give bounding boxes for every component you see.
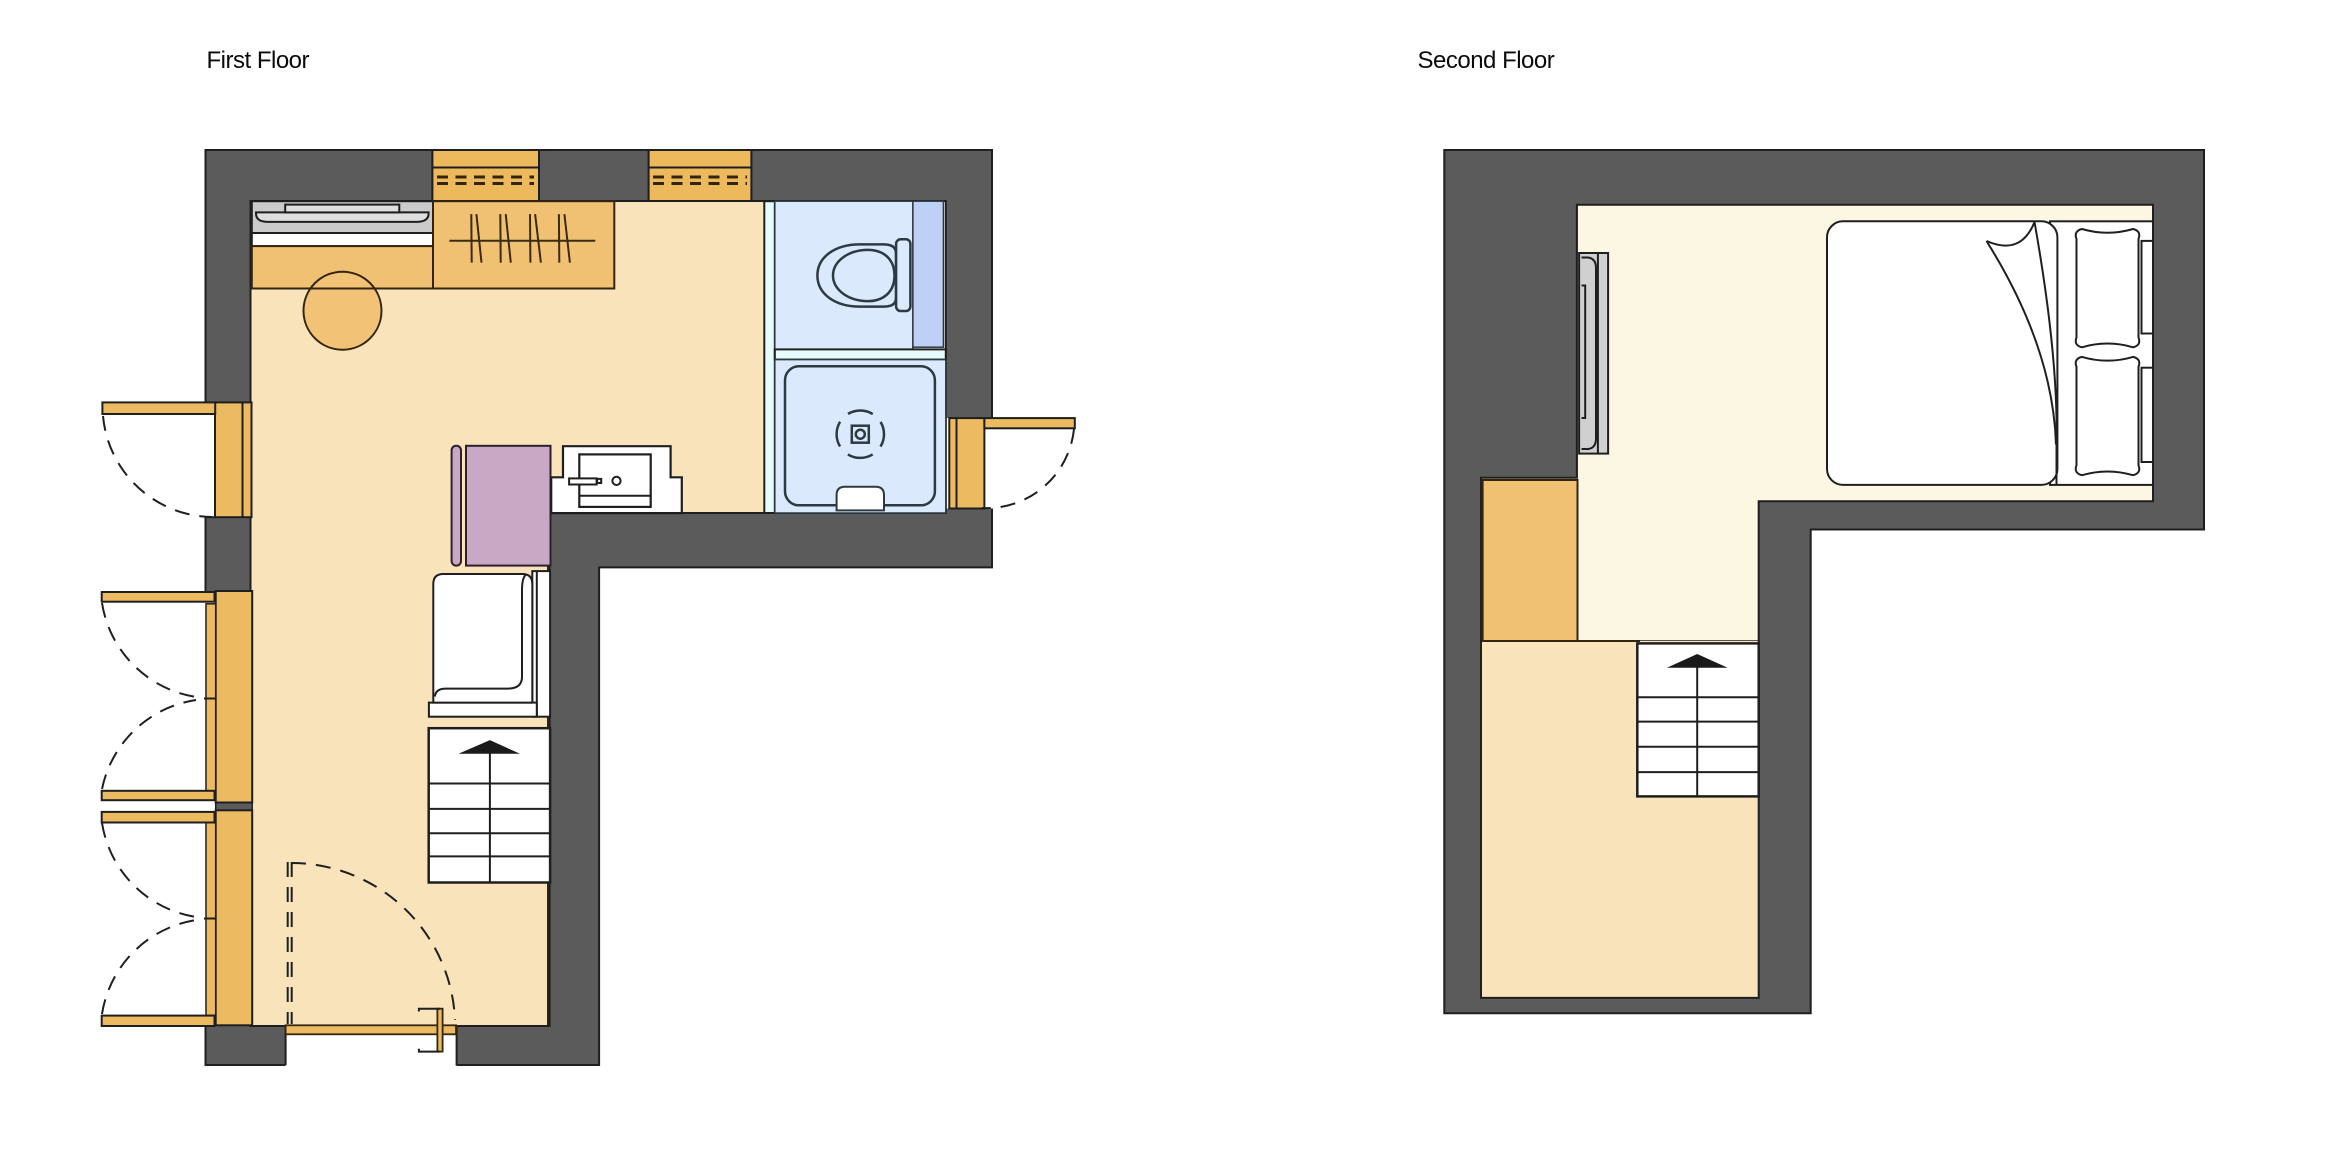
svg-text:First Floor: First Floor [207, 47, 310, 74]
svg-text:Second Floor: Second Floor [1418, 47, 1555, 74]
